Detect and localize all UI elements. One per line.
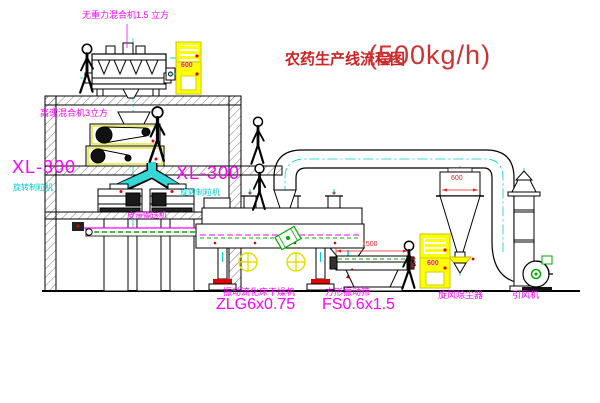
label-cyclone: 旋风除尘器 <box>438 291 483 300</box>
label-granulator-left-name: 旋转制粒机 <box>13 184 53 192</box>
diagram-title-capacity: (500kg/h) <box>368 42 491 69</box>
label-belt-conveyor: 皮带输送机 <box>127 212 167 220</box>
cyclone-inlet-stub <box>448 168 472 172</box>
floor-slab-top <box>45 96 241 105</box>
indicator-light <box>443 248 446 251</box>
gravity-free-mixer <box>84 43 176 98</box>
rotary-valve <box>449 257 471 263</box>
label-gravity-mixer: 无重力混合机1.5 立方 <box>82 11 169 20</box>
indicator-light <box>195 54 198 57</box>
dryer-support <box>209 248 334 290</box>
label-granulator-right-model: XL-300 <box>176 164 240 182</box>
indicator-light <box>195 72 198 75</box>
person-figure <box>251 117 263 163</box>
cabinet-top-text: 600 <box>181 62 193 69</box>
label-granulator-left-model: XL-300 <box>12 158 76 176</box>
dimension-screen-length: 1500 <box>362 241 378 248</box>
label-granulator-right-name: 旋转制粒机 <box>180 189 220 197</box>
fluid-bed-dryer <box>196 189 364 290</box>
person-figure <box>80 44 93 92</box>
label-dryer-model: ZLG6x0.75 <box>216 297 295 313</box>
granulator-left <box>98 184 142 212</box>
left-column <box>45 96 56 291</box>
vibration-motor-symbol <box>239 253 305 271</box>
indicator-light <box>443 266 446 269</box>
dimension-screen-height: 350 <box>409 257 415 267</box>
label-screen-model: FS0.6x1.5 <box>322 297 395 313</box>
pesticide-line-flow-diagram: 农药生产线流程图 (500kg/h) 无重力混合机1.5 立方 高速混合机3立方… <box>0 0 600 403</box>
cabinet-right-text: 600 <box>427 260 439 267</box>
label-fan: 引风机 <box>512 291 539 300</box>
label-high-speed-mixer: 高速混合机3立方 <box>40 109 108 118</box>
dimension-cyclone-inlet: 600 <box>451 175 463 182</box>
